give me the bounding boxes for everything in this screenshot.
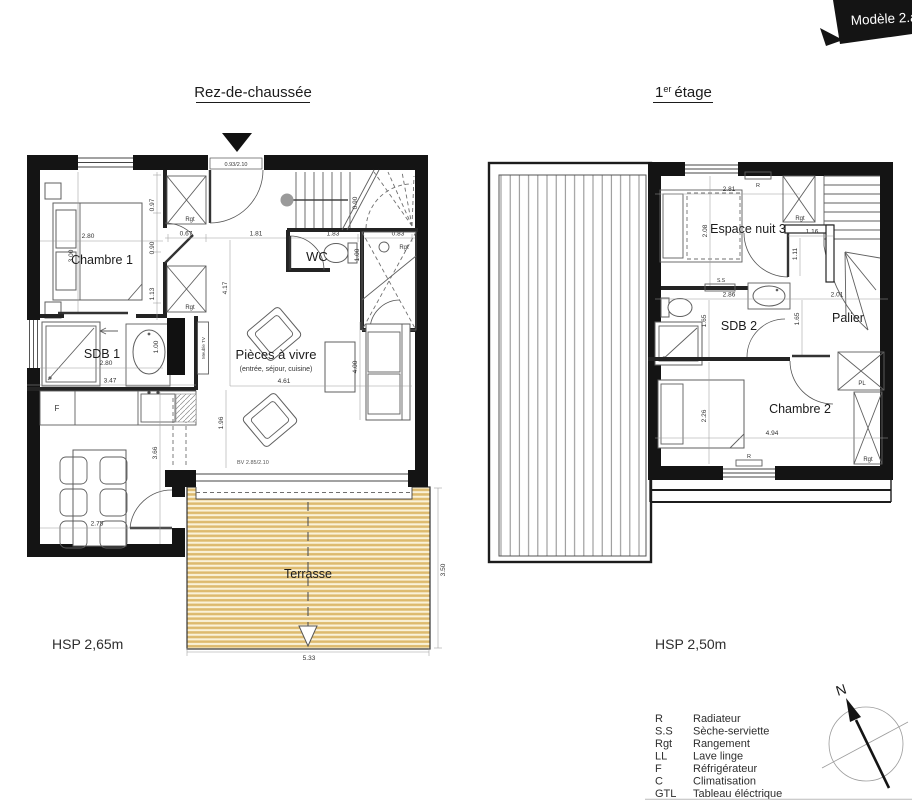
dim-hall1: 0.67: [180, 231, 193, 238]
basin-sdb1: [126, 324, 170, 386]
chambre2-window: [723, 466, 775, 480]
dim-palier-side: 1.11: [792, 248, 799, 261]
rgt-bottom-label: Rgt: [863, 457, 873, 463]
compass: N: [822, 680, 908, 788]
dining-table: [73, 450, 126, 546]
pl-closet: PL: [838, 352, 884, 390]
living-sublabel: (entrée, séjour, cuisine): [240, 366, 313, 373]
kitchen-sink: [141, 391, 196, 422]
dim-sdb1-basin: 1.00: [153, 340, 160, 353]
fridge-label: F: [55, 404, 60, 413]
dim-sdb2-w: 2.86: [723, 292, 736, 299]
sdb2-room: S.S SDB 2 2.86 1.65: [650, 278, 790, 365]
terrasse-area: Terrasse 5.33 3.50: [187, 486, 447, 662]
seche-serviette-label: S.S: [717, 278, 726, 284]
dim-living-h2: 1.96: [218, 416, 225, 429]
plan-drawing: Modèle 2.a Rez-de-chaussée 1erétage Terr…: [0, 0, 912, 800]
terrasse-label: Terrasse: [284, 567, 332, 581]
espace-nuit-window: [685, 162, 738, 176]
dim-chambre2-h: 2.26: [701, 409, 708, 422]
compass-cross-line: [822, 722, 908, 768]
rgt-hall-bottom-label: Rgt: [185, 305, 195, 311]
ground-hsp-label: HSP 2,65m: [52, 636, 123, 652]
dim-palier-top: 1.16: [806, 229, 819, 236]
wc-room: WC 1.00: [288, 230, 416, 330]
palier-label: Palier: [832, 311, 864, 325]
legend-label: Lave linge: [693, 751, 743, 763]
legend-abbr: GTL: [655, 788, 676, 800]
chambre1-window: [78, 155, 133, 170]
meuble-tv-label: Meuble TV: [201, 337, 206, 359]
entry-door-label-box: 0.93/2.10: [208, 155, 264, 170]
dim-sdb1-w: 2.80: [100, 360, 113, 367]
compass-arrowhead-icon: [846, 698, 861, 722]
dim-dining-w: 2.75: [91, 521, 104, 528]
first-floor-title: 1erétage: [655, 84, 712, 101]
floor-plan-sheet: Modèle 2.a Rez-de-chaussée 1erétage Terr…: [0, 0, 912, 800]
sofa: [366, 324, 410, 420]
first-floor-plan: Espace nuit 3 R 2.81 2.08 Rgt: [489, 162, 893, 652]
terrasse-door-arc: [130, 490, 172, 528]
model-label: Modèle 2.a: [850, 9, 912, 28]
wc-label: WC: [306, 249, 328, 264]
newel-post: [281, 194, 294, 207]
pl-label: PL: [858, 381, 866, 387]
espace-nuit-label: Espace nuit 3: [710, 222, 786, 236]
bed-chambre1: [45, 183, 142, 318]
dim-dining-h: 3.66: [152, 446, 159, 459]
legend-label: Rangement: [693, 738, 750, 750]
chambre1-label: Chambre 1: [71, 253, 133, 267]
compass-needle: [856, 720, 889, 788]
legend-abbr: F: [655, 763, 662, 775]
duct: [167, 318, 185, 375]
dim-left2: 0.90: [149, 241, 156, 254]
chambre2-door-arc: [790, 361, 833, 404]
dim-kitchen-w: 3.47: [104, 378, 117, 385]
dim-living-h: 4.00: [352, 360, 359, 373]
dim-hall-height: 4.17: [222, 281, 229, 294]
bay-window-label: BV 2.85/2.10: [237, 460, 269, 466]
dim-chambre1-w: 2.80: [82, 233, 95, 240]
palier-area: Palier 2.01 1.65: [790, 292, 888, 358]
ground-floor-plan: Terrasse 5.33 3.50 0.93/2.10: [27, 155, 447, 662]
bay-window: BV 2.85/2.10: [196, 460, 408, 487]
armchair-2: [242, 392, 299, 448]
legend-abbr: LL: [655, 751, 667, 763]
plan-titles: Rez-de-chaussée 1erétage: [194, 84, 713, 152]
dim-palier-w: 2.01: [831, 292, 844, 299]
dim-espace-h: 2.08: [702, 224, 709, 237]
dim-chambre1-h: 3.00: [68, 249, 75, 262]
coffee-table: [325, 342, 355, 392]
stairs-first: 1.16 1.11: [744, 176, 880, 330]
dim-terrasse-height: 3.50: [440, 563, 447, 576]
chambre2-room: PL Rgt R Chambre 2 4.94 2.26: [648, 352, 888, 466]
legend-label: Réfrigérateur: [693, 763, 758, 775]
rgt-stairs-label: Rgt: [399, 245, 409, 251]
toilet-sdb2: [661, 298, 692, 317]
legend-label: Sèche-serviette: [693, 726, 769, 738]
rgt-top-label: Rgt: [795, 216, 805, 222]
legend-label: Tableau éléctrique: [693, 788, 782, 800]
compass-north-label: N: [834, 680, 849, 698]
legend-abbr: Rgt: [655, 738, 672, 750]
dim-espace-w: 2.81: [723, 186, 736, 193]
dim-hall2: 1.81: [250, 231, 263, 238]
rgt-top-closet: Rgt: [783, 176, 815, 222]
dim-left1: 0.97: [149, 198, 156, 211]
first-hsp-label: HSP 2,50m: [655, 636, 726, 652]
understairs-closet: Rgt: [362, 232, 416, 330]
toilet-wc: [324, 243, 357, 263]
ground-floor-title: Rez-de-chaussée: [194, 84, 312, 101]
legend-abbr: R: [655, 713, 663, 725]
legend-label: Radiateur: [693, 713, 741, 725]
dim-wc-w: 1.00: [354, 248, 361, 261]
vanity-sdb2: [748, 283, 790, 309]
compass-circle: [829, 707, 903, 781]
legend: R Radiateur S.S Sèche-serviette Rgt Rang…: [645, 713, 912, 800]
model-banner: Modèle 2.a: [820, 0, 912, 46]
sdb1-window: [27, 320, 40, 368]
radiator-bottom-label: R: [747, 454, 751, 460]
chambre1-room: Chambre 1 2.80 3.00: [40, 170, 193, 318]
entry-door-size-label: 0.93/2.10: [225, 162, 248, 168]
chambre2-label: Chambre 2: [769, 402, 831, 416]
dim-living-w: 4.61: [278, 378, 291, 385]
roof-area: [489, 163, 651, 562]
dim-chambre2-w: 4.94: [766, 430, 779, 437]
sdb2-label: SDB 2: [721, 319, 757, 333]
rgt-hall-top-label: Rgt: [185, 217, 195, 223]
dim-sdb2-h: 1.65: [701, 314, 708, 327]
dim-palier-h: 1.65: [794, 312, 801, 325]
stairs-ground: 0.90: [281, 170, 419, 230]
dining-area: 2.75 3.66: [40, 392, 172, 548]
sliding-arrow-icon: [100, 328, 118, 334]
dim-left3: 1.13: [149, 287, 156, 300]
chambre1-door-leaf: [165, 235, 193, 263]
legend-abbr: S.S: [655, 726, 673, 738]
radiator-top-label: R: [756, 183, 760, 189]
dim-terrasse-width: 5.33: [303, 655, 316, 662]
entrance-marker-icon: [222, 133, 252, 152]
living-label: Pièces à vivre: [236, 347, 317, 362]
sdb1-label: SDB 1: [84, 347, 120, 361]
entry-door: [210, 170, 263, 223]
legend-abbr: C: [655, 776, 663, 788]
palier-door-arc: [744, 233, 788, 277]
rgt-bottom-closet: Rgt: [854, 392, 882, 464]
legend-label: Climatisation: [693, 776, 756, 788]
dim-stairs-w: 0.90: [352, 196, 359, 209]
